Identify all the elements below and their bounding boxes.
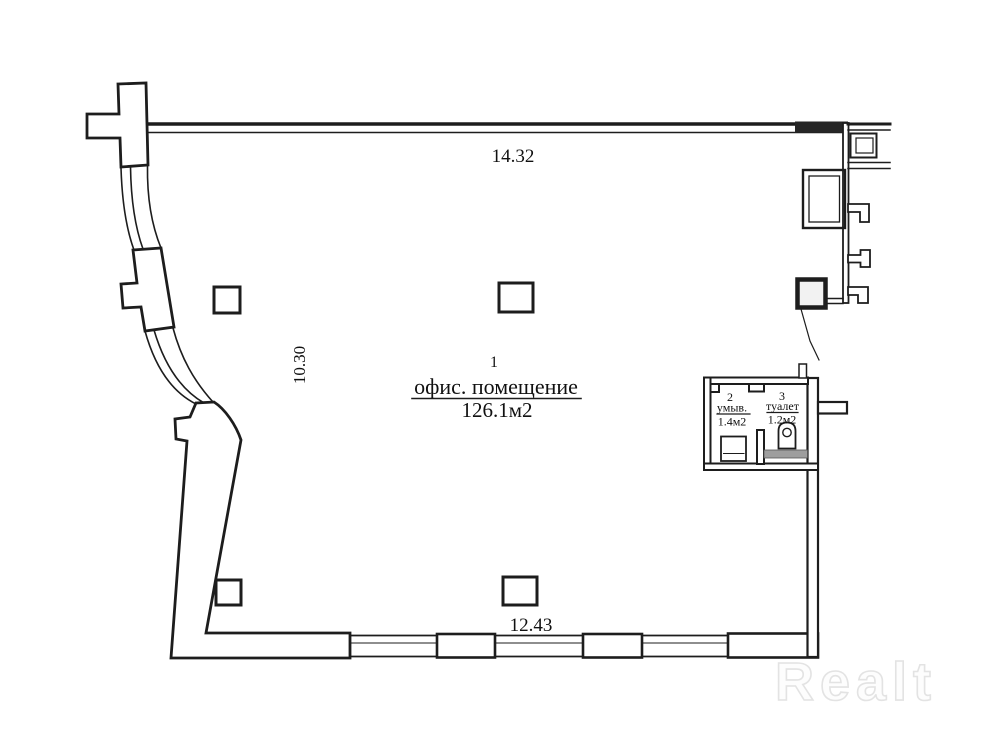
floor-plan: 14.32 10.30 12.43 1 офис. помещение 126.… <box>0 0 1008 756</box>
washroom-name: умыв. <box>717 401 747 415</box>
dimension-top: 14.32 <box>492 146 535 167</box>
toilet-name: туалет <box>766 399 800 413</box>
bottom-wall-pier-2 <box>583 634 642 658</box>
walls <box>87 83 890 658</box>
washroom-area: 1.4м2 <box>718 415 747 429</box>
column-bottom-left <box>216 580 241 605</box>
right-wall <box>808 378 819 657</box>
toilet-cistern-band <box>764 450 808 458</box>
columns <box>214 283 537 605</box>
dimension-left: 10.30 <box>290 346 309 384</box>
bathroom-duct-stub <box>799 364 807 378</box>
column-bottom-center <box>503 577 537 605</box>
curtain-wall-lower <box>145 328 213 404</box>
wall-hook-lower <box>848 287 868 303</box>
top-wall-solid-segment <box>795 122 848 133</box>
toilet-area: 1.2м2 <box>768 413 797 427</box>
bottom-window-band <box>350 636 728 657</box>
right-wall-stub <box>818 402 847 414</box>
pier-middle-left <box>121 248 174 331</box>
equipment-box <box>798 280 826 308</box>
floor-plan-page: 14.32 10.30 12.43 1 офис. помещение 126.… <box>0 0 1008 756</box>
bathroom-partition <box>757 430 764 464</box>
office-name: офис. помещение <box>414 374 578 399</box>
watermark-logo: Realt <box>775 652 937 712</box>
pier-top-left <box>87 83 148 167</box>
curtain-wall-upper <box>121 166 161 250</box>
sink-fixture <box>721 437 746 462</box>
shaft-box-large-inner <box>809 176 840 222</box>
bathroom-top-pier <box>749 384 764 392</box>
leader-line <box>801 309 819 360</box>
dimension-bottom: 12.43 <box>510 615 553 636</box>
column-top-center <box>499 283 533 312</box>
office-number: 1 <box>490 354 498 371</box>
office-area: 126.1м2 <box>461 398 532 422</box>
column-top-left <box>214 287 240 313</box>
bathroom-corner-step <box>711 384 720 392</box>
service-assembly <box>798 123 891 308</box>
wall-stub-mid <box>848 250 870 267</box>
toilet-fixture-button <box>783 428 791 436</box>
duct-box-small-inner <box>856 138 873 153</box>
wall-bottom-left <box>171 402 350 658</box>
bottom-wall-pier-1 <box>437 634 495 658</box>
wall-hook-upper <box>848 204 869 222</box>
